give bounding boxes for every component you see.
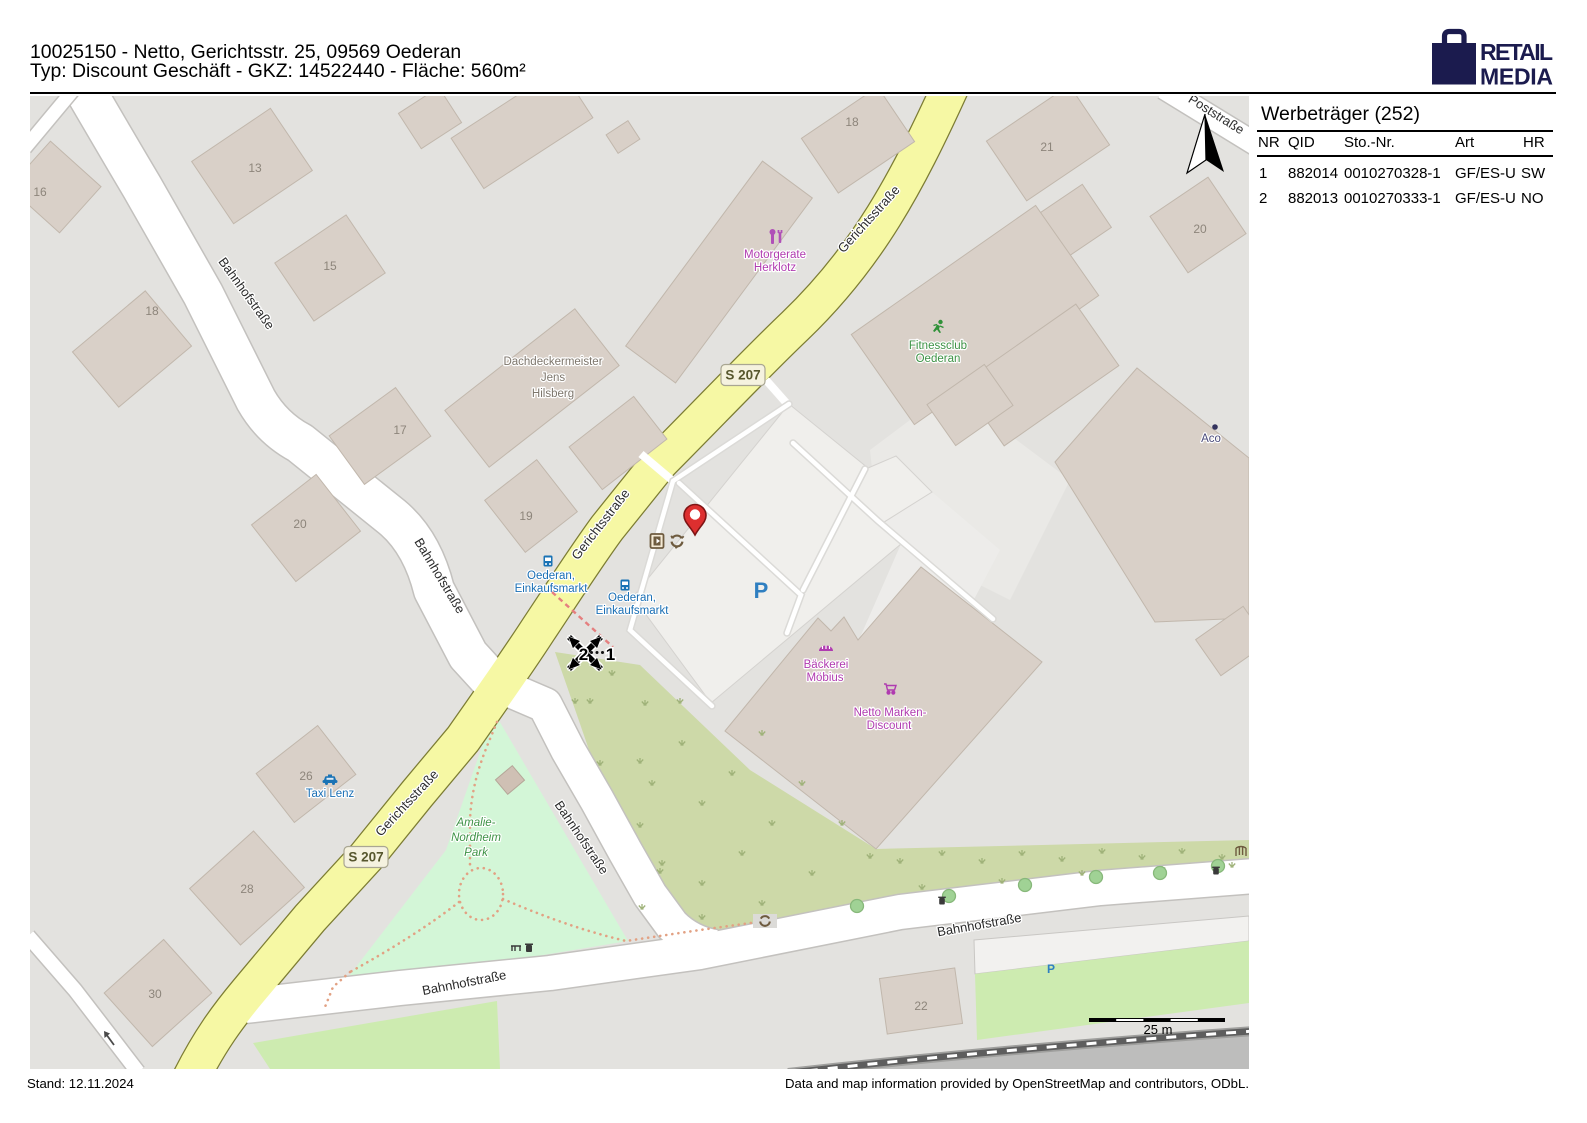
svg-text:Hilsberg: Hilsberg (532, 388, 574, 400)
svg-text:25 m: 25 m (1144, 1022, 1173, 1037)
svg-text:Möbius: Möbius (806, 672, 843, 684)
svg-text:RETAIL: RETAIL (1480, 39, 1553, 65)
svg-text:28: 28 (240, 882, 254, 896)
svg-text:MEDIA: MEDIA (1480, 63, 1553, 89)
svg-text:13: 13 (248, 161, 262, 175)
svg-text:Discount: Discount (867, 720, 913, 732)
svg-text:26: 26 (299, 769, 313, 783)
svg-text:Fitnessclub: Fitnessclub (909, 340, 967, 352)
svg-text:16: 16 (33, 185, 47, 199)
svg-text:S 207: S 207 (348, 850, 383, 865)
svg-text:Oederan,: Oederan, (527, 570, 575, 582)
svg-text:Einkaufsmarkt: Einkaufsmarkt (515, 583, 589, 595)
svg-text:P: P (1047, 962, 1055, 976)
svg-text:P: P (754, 578, 769, 603)
svg-text:Motorgerate: Motorgerate (744, 249, 806, 261)
svg-text:Netto Marken-: Netto Marken- (854, 707, 927, 719)
svg-text:Herklotz: Herklotz (754, 262, 796, 274)
svg-text:Aco: Aco (1201, 433, 1221, 445)
svg-text:1: 1 (606, 645, 615, 664)
svg-text:19: 19 (519, 509, 533, 523)
svg-text:22: 22 (914, 999, 928, 1013)
svg-text:Park: Park (464, 847, 489, 859)
svg-text:Jens: Jens (541, 372, 566, 384)
svg-text:17: 17 (393, 423, 407, 437)
svg-text:15: 15 (323, 259, 337, 273)
svg-text:Nordheim: Nordheim (451, 832, 501, 844)
svg-text:20: 20 (1193, 222, 1207, 236)
svg-text:Oederan: Oederan (916, 353, 961, 365)
svg-text:30: 30 (148, 987, 162, 1001)
svg-text:21: 21 (1040, 140, 1054, 154)
svg-text:2: 2 (579, 645, 588, 664)
svg-text:20: 20 (293, 517, 307, 531)
svg-text:S 207: S 207 (725, 368, 760, 383)
svg-text:Einkaufsmarkt: Einkaufsmarkt (596, 605, 670, 617)
svg-text:18: 18 (845, 115, 859, 129)
svg-text:Amalie-: Amalie- (456, 817, 496, 829)
svg-text:Dachdeckermeister: Dachdeckermeister (503, 356, 602, 368)
svg-text:Bäckerei: Bäckerei (804, 659, 849, 671)
svg-text:Oederan,: Oederan, (608, 592, 656, 604)
svg-text:18: 18 (145, 304, 159, 318)
svg-text:Taxi Lenz: Taxi Lenz (306, 788, 355, 800)
